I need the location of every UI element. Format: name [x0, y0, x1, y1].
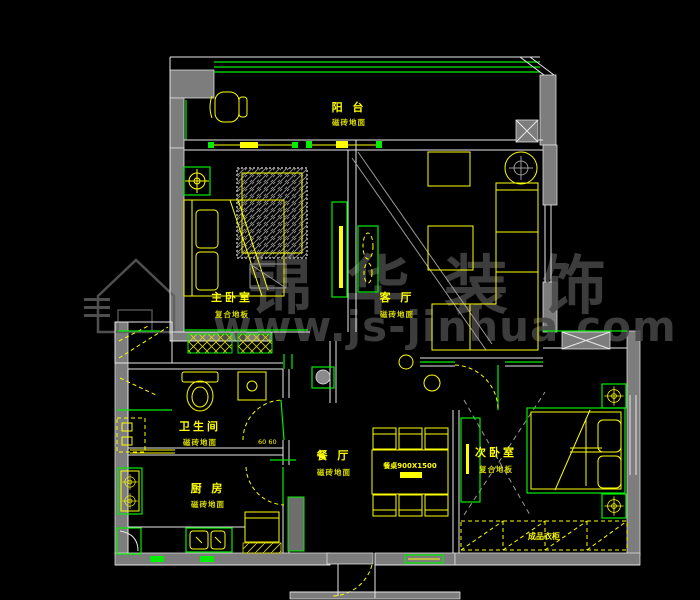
- room-dining-room: 餐桌900X1500 餐 厅 磁砖地面: [316, 428, 448, 516]
- second-bedroom-label: 次卧室: [475, 445, 517, 459]
- living-room-floor-label: 磁砖地面: [380, 309, 414, 319]
- door-to-second-bedroom: [455, 365, 498, 410]
- master-bedroom-floor-label: 复合地板: [214, 309, 249, 319]
- side-table: [428, 152, 470, 186]
- double-sink-icon: [186, 528, 232, 552]
- kitchen-label: 厨 房: [191, 481, 226, 495]
- armchair-icon: [210, 92, 247, 122]
- nightstand-lamp-icon: [602, 494, 626, 518]
- dining-table-size-label: 餐桌900X1500: [382, 461, 437, 470]
- watermark-house-logo: [84, 260, 174, 332]
- dining-room-floor-label: 磁砖地面: [317, 467, 351, 477]
- washing-machine-icon: [238, 372, 266, 400]
- balcony-label: 阳 台: [332, 100, 367, 114]
- floor-drain-icon: [312, 367, 334, 388]
- nightstand-lamp-icon: [602, 384, 626, 408]
- wardrobe-label: 成品衣柜: [528, 531, 560, 541]
- dining-table: 餐桌900X1500: [372, 450, 448, 494]
- door-dimension-label: 60 60: [258, 438, 277, 446]
- dining-room-label: 餐 厅: [316, 448, 352, 462]
- bathroom-door: [243, 400, 284, 440]
- room-second-bedroom: 成品衣柜 次卧室 复合地板: [461, 384, 627, 550]
- second-bedroom-floor-label: 复合地板: [478, 464, 513, 474]
- rug: [237, 168, 307, 258]
- room-bathroom: 60 60 卫生间 磁砖地面: [117, 372, 284, 452]
- ceiling-lamp-icon: [184, 167, 210, 195]
- tall-cabinet: [288, 497, 304, 551]
- toilet-icon: [182, 372, 218, 411]
- balcony-floor-label: 磁砖地面: [332, 117, 366, 127]
- floor-plan-drawing: 锦华装饰 www.js-jinhua.com: [0, 0, 700, 600]
- desk-cabinet: [461, 418, 480, 502]
- light-symbol: [399, 355, 413, 369]
- light-symbol: [424, 375, 440, 391]
- room-balcony: 阳 台 磁砖地面: [210, 92, 366, 127]
- shoe-cabinets: [188, 334, 272, 353]
- master-bedroom-label: 主卧室: [211, 290, 253, 304]
- room-kitchen: 厨 房 磁砖地面: [117, 460, 304, 554]
- wardrobe: 成品衣柜: [461, 521, 627, 550]
- floor-plan-canvas: 锦华装饰 www.js-jinhua.com: [0, 0, 700, 600]
- living-room-label: 客 厅: [379, 290, 415, 304]
- bathroom-label: 卫生间: [179, 419, 221, 433]
- kitchen-floor-label: 磁砖地面: [191, 499, 225, 509]
- ceiling-fan-icon: [505, 152, 537, 184]
- double-bed-2: [527, 408, 625, 493]
- fridge-icon: [243, 512, 281, 553]
- bathroom-floor-label: 磁砖地面: [183, 437, 217, 447]
